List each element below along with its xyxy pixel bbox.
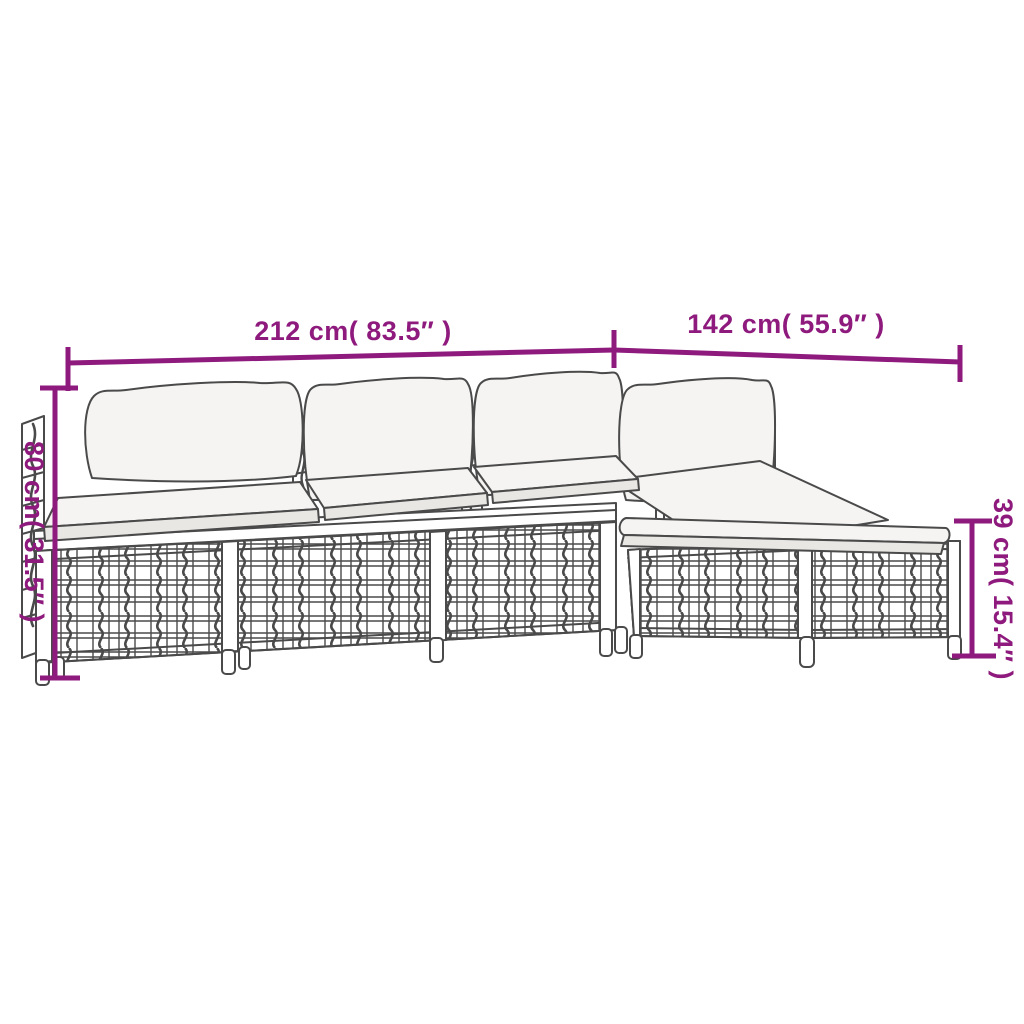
product-dimension-diagram: 212 cm( 83.5″ ) 142 cm( 55.9″ ) 80 cm( 3… bbox=[0, 0, 1024, 1024]
dim-line-142 bbox=[614, 350, 960, 362]
dim-label-seat-height: 39 cm( 15.4″ ) bbox=[988, 498, 1018, 680]
diagram-canvas: 212 cm( 83.5″ ) 142 cm( 55.9″ ) 80 cm( 3… bbox=[0, 0, 1024, 1024]
dim-label-total-width: 212 cm( 83.5″ ) bbox=[254, 316, 452, 346]
dimension-depth: 142 cm( 55.9″ ) bbox=[614, 309, 960, 382]
sofa-line-art bbox=[22, 372, 961, 685]
back-cushion-1 bbox=[85, 382, 303, 482]
dim-label-depth: 142 cm( 55.9″ ) bbox=[687, 309, 885, 339]
dim-line-212 bbox=[68, 350, 614, 363]
footstool-base bbox=[628, 541, 960, 638]
dim-label-height: 80 cm( 31.5″ ) bbox=[19, 441, 49, 623]
